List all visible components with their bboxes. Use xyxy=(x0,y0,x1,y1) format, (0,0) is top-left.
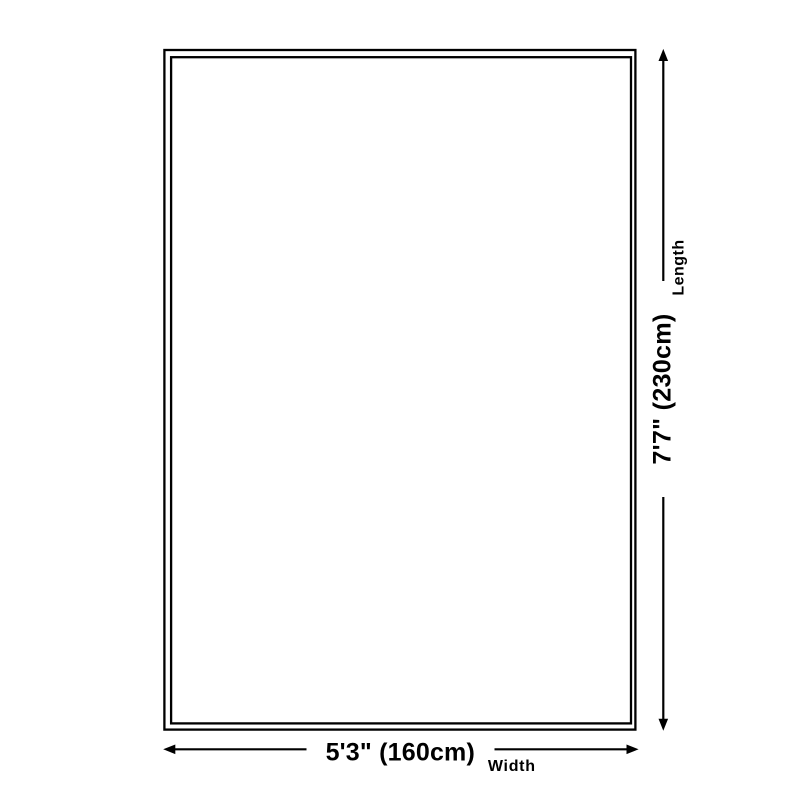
svg-text:7'7" (230cm): 7'7" (230cm) xyxy=(649,313,677,464)
svg-text:Length: Length xyxy=(671,239,688,295)
svg-text:5'3" (160cm): 5'3" (160cm) xyxy=(326,739,475,767)
svg-text:Width: Width xyxy=(488,758,536,775)
